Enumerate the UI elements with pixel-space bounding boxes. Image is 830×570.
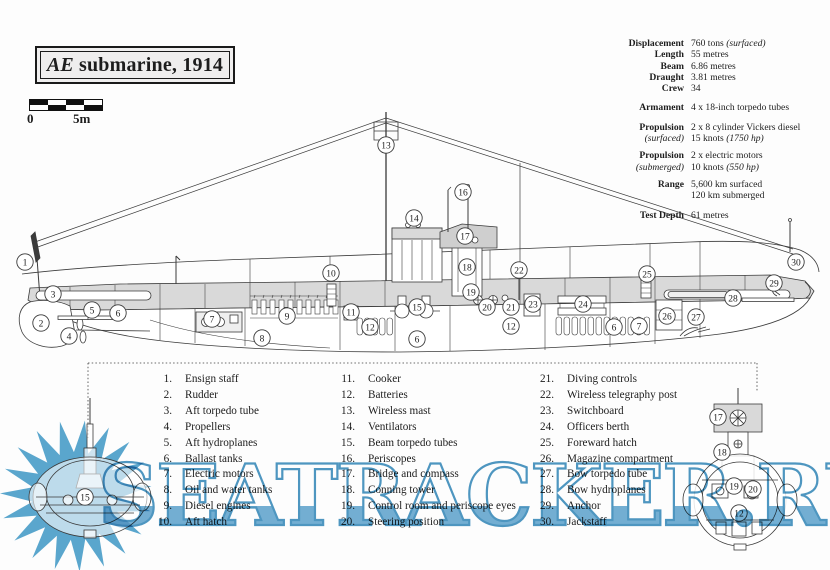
part-label: Officers berth [554, 420, 629, 436]
spec-value: 2 x 8 cylinder Vickers diesel15 knots (1… [691, 122, 824, 145]
part-number: 7. [150, 467, 172, 483]
parts-list-item: 22.Wireless telegraphy post [532, 388, 744, 404]
scale-end-label: 5m [73, 111, 90, 127]
superstructure [392, 223, 442, 283]
callout-number: 10 [326, 269, 336, 279]
spec-label: Test Depth [596, 210, 684, 221]
part-label: Control room and periscope eyes [355, 499, 516, 515]
part-label: Wireless telegraphy post [554, 388, 677, 404]
part-number: 19. [333, 499, 355, 515]
callout-number: 19 [466, 288, 476, 298]
part-number: 1. [150, 372, 172, 388]
callout-number: 9 [285, 312, 290, 322]
part-number: 21. [532, 372, 554, 388]
callout-number: 6 [116, 309, 121, 319]
part-label: Foreward hatch [554, 436, 637, 452]
spec-row: Propulsion(surfaced)2 x 8 cylinder Vicke… [596, 122, 824, 145]
part-label: Aft hatch [172, 515, 227, 531]
part-label: Beam torpedo tubes [355, 436, 457, 452]
spec-value: 34 [691, 83, 824, 94]
spec-value: 61 metres [691, 210, 824, 221]
spec-row: Length55 metres [596, 49, 824, 60]
parts-list-item: 19.Control room and periscope eyes [333, 499, 532, 515]
scale-bar-checker [29, 99, 103, 111]
parts-list-item: 14.Ventilators [333, 420, 532, 436]
parts-list-item: 17.Bridge and compass [333, 467, 532, 483]
part-label: Bow hydroplanes [554, 483, 646, 499]
callout-number: 14 [409, 214, 419, 224]
spec-value: 4 x 18-inch torpedo tubes [691, 102, 824, 113]
callout-number: 17 [460, 232, 470, 242]
part-number: 18. [333, 483, 355, 499]
parts-list-item: 7.Electric motors [150, 467, 333, 483]
parts-list-item: 15.Beam torpedo tubes [333, 436, 532, 452]
aft-hatch [327, 284, 336, 306]
part-number: 25. [532, 436, 554, 452]
parts-column-3: 21.Diving controls22.Wireless telegraphy… [532, 372, 744, 531]
parts-column-2: 11.Cooker12.Batteries13.Wireless mast14.… [333, 372, 532, 531]
part-label: Bridge and compass [355, 467, 459, 483]
spec-label: Crew [596, 83, 684, 94]
parts-list-item: 2.Rudder [150, 388, 333, 404]
page: 1234567891011121314151617181920211222232… [0, 0, 830, 570]
parts-list-item: 18.Conning tower [333, 483, 532, 499]
callout-number: 26 [662, 312, 672, 322]
part-number: 17. [333, 467, 355, 483]
spec-label: Displacement [596, 38, 684, 49]
part-label: Cooker [355, 372, 401, 388]
part-number: 20. [333, 515, 355, 531]
deck-staff [176, 256, 180, 284]
spec-label: Beam [596, 61, 684, 72]
part-label: Bow torpedo tube [554, 467, 647, 483]
callout-number: 23 [528, 300, 538, 310]
callout-number: 27 [691, 313, 701, 323]
parts-list-item: 25.Foreward hatch [532, 436, 744, 452]
part-label: Batteries [355, 388, 408, 404]
part-number: 16. [333, 452, 355, 468]
parts-list-item: 12.Batteries [333, 388, 532, 404]
spec-value: 6.86 metres [691, 61, 824, 72]
part-number: 10. [150, 515, 172, 531]
part-number: 15. [333, 436, 355, 452]
spec-row: Armament4 x 18-inch torpedo tubes [596, 102, 824, 113]
callout-number: 24 [578, 300, 588, 310]
parts-list-item: 5.Aft hydroplanes [150, 436, 333, 452]
callout-number: 20 [748, 485, 758, 495]
part-number: 13. [333, 404, 355, 420]
part-number: 26. [532, 452, 554, 468]
callout-number: 7 [637, 322, 642, 332]
callout-number: 4 [67, 332, 72, 342]
callout-number: 13 [381, 141, 391, 151]
part-number: 23. [532, 404, 554, 420]
part-label: Diesel engines [172, 499, 251, 515]
spec-row: Beam6.86 metres [596, 61, 824, 72]
parts-list-item: 21.Diving controls [532, 372, 744, 388]
part-label: Propellers [172, 420, 230, 436]
part-label: Ventilators [355, 420, 416, 436]
part-number: 12. [333, 388, 355, 404]
spec-label: Draught [596, 72, 684, 83]
spec-value: 5,600 km surfaced120 km submerged [691, 179, 824, 202]
spec-table: Displacement760 tons (surfaced)Length55 … [596, 38, 824, 221]
spec-row: Crew34 [596, 83, 824, 94]
callout-number: 3 [51, 290, 56, 300]
part-label: Jackstaff [554, 515, 607, 531]
part-label: Steering position [355, 515, 444, 531]
spec-row: Displacement760 tons (surfaced) [596, 38, 824, 49]
callout-number: 16 [458, 188, 468, 198]
callout-number: 28 [728, 294, 738, 304]
page-title: AE submarine, 1914 [40, 51, 230, 79]
parts-list-item: 6.Ballast tanks [150, 452, 333, 468]
part-label: Switchboard [554, 404, 624, 420]
part-label: Diving controls [554, 372, 637, 388]
part-label: Ballast tanks [172, 452, 242, 468]
part-number: 8. [150, 483, 172, 499]
parts-list-item: 3.Aft torpedo tube [150, 404, 333, 420]
spec-label: Armament [596, 102, 684, 113]
callout-number: 12 [365, 323, 375, 333]
spec-label: Propulsion(submerged) [596, 150, 684, 173]
parts-list-item: 30.Jackstaff [532, 515, 744, 531]
part-number: 22. [532, 388, 554, 404]
spec-row: Range5,600 km surfaced120 km submerged [596, 179, 824, 202]
callout-number: 15 [80, 493, 90, 503]
spec-row: Draught3.81 metres [596, 72, 824, 83]
parts-list-item: 27.Bow torpedo tube [532, 467, 744, 483]
parts-list-item: 24.Officers berth [532, 420, 744, 436]
callout-number: 20 [482, 303, 492, 313]
spec-value: 2 x electric motors10 knots (550 hp) [691, 150, 824, 173]
spec-value: 3.81 metres [691, 72, 824, 83]
parts-list-item: 20.Steering position [333, 515, 532, 531]
parts-list-item: 29.Anchor [532, 499, 744, 515]
spec-label: Propulsion(surfaced) [596, 122, 684, 145]
parts-list-item: 11.Cooker [333, 372, 532, 388]
part-label: Magazine compartment [554, 452, 673, 468]
parts-list-item: 9.Diesel engines [150, 499, 333, 515]
callout-number: 1 [23, 258, 28, 268]
part-number: 27. [532, 467, 554, 483]
parts-list-item: 10.Aft hatch [150, 515, 333, 531]
part-number: 30. [532, 515, 554, 531]
bow-hydroplane [742, 298, 794, 302]
part-number: 28. [532, 483, 554, 499]
scale-bar: 0 5m [29, 99, 103, 125]
parts-list-item: 28.Bow hydroplanes [532, 483, 744, 499]
spec-label: Range [596, 179, 684, 202]
callout-number: 21 [506, 303, 516, 313]
callout-number: 8 [260, 334, 265, 344]
callout-number: 5 [90, 306, 95, 316]
callout-number: 7 [210, 315, 215, 325]
callout-number: 12 [506, 322, 516, 332]
part-label: Anchor [554, 499, 601, 515]
part-number: 4. [150, 420, 172, 436]
part-number: 29. [532, 499, 554, 515]
part-number: 6. [150, 452, 172, 468]
spec-row: Propulsion(submerged)2 x electric motors… [596, 150, 824, 173]
callout-number: 6 [415, 335, 420, 345]
spec-row: Test Depth61 metres [596, 210, 824, 221]
parts-column-1: 1.Ensign staff2.Rudder3.Aft torpedo tube… [150, 372, 333, 531]
title-rest: submarine, 1914 [79, 54, 223, 77]
callout-number: 6 [612, 323, 617, 333]
parts-list-item: 26.Magazine compartment [532, 452, 744, 468]
part-number: 3. [150, 404, 172, 420]
callout-number: 25 [642, 270, 652, 280]
part-label: Aft torpedo tube [172, 404, 259, 420]
parts-list-item: 4.Propellers [150, 420, 333, 436]
callout-number: 29 [769, 279, 779, 289]
part-number: 24. [532, 420, 554, 436]
callout-number: 11 [346, 308, 355, 318]
callout-number: 2 [39, 319, 44, 329]
part-label: Periscopes [355, 452, 416, 468]
part-number: 2. [150, 388, 172, 404]
scale-start-label: 0 [27, 111, 34, 127]
part-label: Ensign staff [172, 372, 239, 388]
title-class-prefix: AE [47, 54, 74, 77]
part-label: Conning tower [355, 483, 435, 499]
part-number: 5. [150, 436, 172, 452]
spec-value: 55 metres [691, 49, 824, 60]
parts-list: 1.Ensign staff2.Rudder3.Aft torpedo tube… [150, 372, 744, 531]
title-box: AE submarine, 1914 [35, 46, 235, 84]
callout-number: 18 [462, 263, 472, 273]
part-label: Electric motors [172, 467, 254, 483]
callout-number: 30 [791, 258, 801, 268]
callout-number: 22 [514, 266, 524, 276]
parts-list-item: 1.Ensign staff [150, 372, 333, 388]
propeller-blade [80, 331, 86, 343]
part-number: 9. [150, 499, 172, 515]
part-label: Wireless mast [355, 404, 431, 420]
parts-list-item: 23.Switchboard [532, 404, 744, 420]
callout-number: 15 [412, 303, 422, 313]
parts-list-item: 13.Wireless mast [333, 404, 532, 420]
part-number: 11. [333, 372, 355, 388]
part-label: Rudder [172, 388, 218, 404]
parts-list-item: 8.Oil and water tanks [150, 483, 333, 499]
spec-label: Length [596, 49, 684, 60]
spec-value: 760 tons (surfaced) [691, 38, 824, 49]
part-label: Aft hydroplanes [172, 436, 257, 452]
parts-list-item: 16.Periscopes [333, 452, 532, 468]
part-label: Oil and water tanks [172, 483, 272, 499]
part-number: 14. [333, 420, 355, 436]
